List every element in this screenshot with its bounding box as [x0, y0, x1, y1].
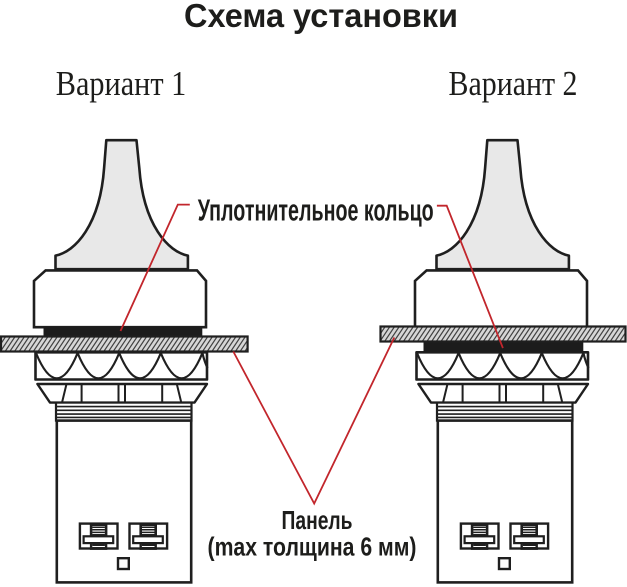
svg-text:Вариант 1: Вариант 1: [56, 64, 187, 103]
svg-text:(max толщина 6 мм): (max толщина 6 мм): [208, 532, 417, 562]
svg-text:Вариант 2: Вариант 2: [449, 64, 578, 103]
svg-text:Схема установки: Схема установки: [184, 0, 458, 34]
svg-text:Уплотнительное кольцо: Уплотнительное кольцо: [198, 192, 434, 227]
svg-text:Панель: Панель: [282, 505, 353, 535]
